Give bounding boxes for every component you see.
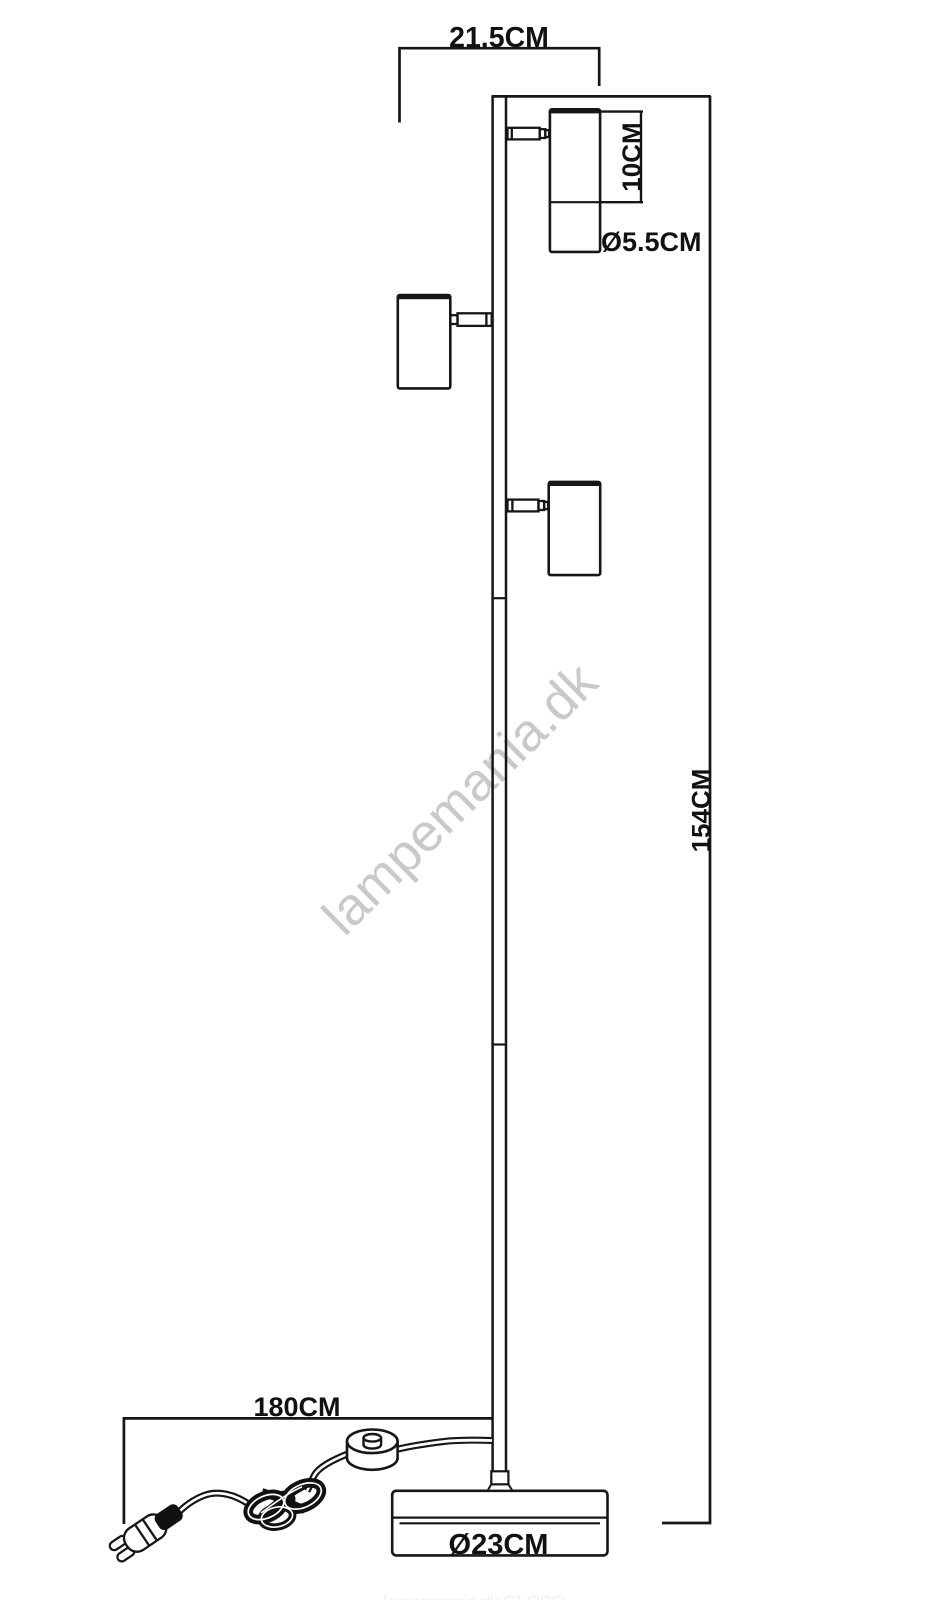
svg-text:Ø5.5CM: Ø5.5CM: [601, 227, 702, 257]
svg-text:Ø23CM: Ø23CM: [449, 1529, 549, 1561]
svg-text:lampemania.dk GLOBO: lampemania.dk GLOBO: [383, 1593, 566, 1600]
svg-text:21.5CM: 21.5CM: [449, 22, 549, 54]
svg-text:180CM: 180CM: [253, 1392, 340, 1422]
svg-text:10CM: 10CM: [617, 122, 647, 191]
svg-text:154CM: 154CM: [686, 769, 716, 853]
